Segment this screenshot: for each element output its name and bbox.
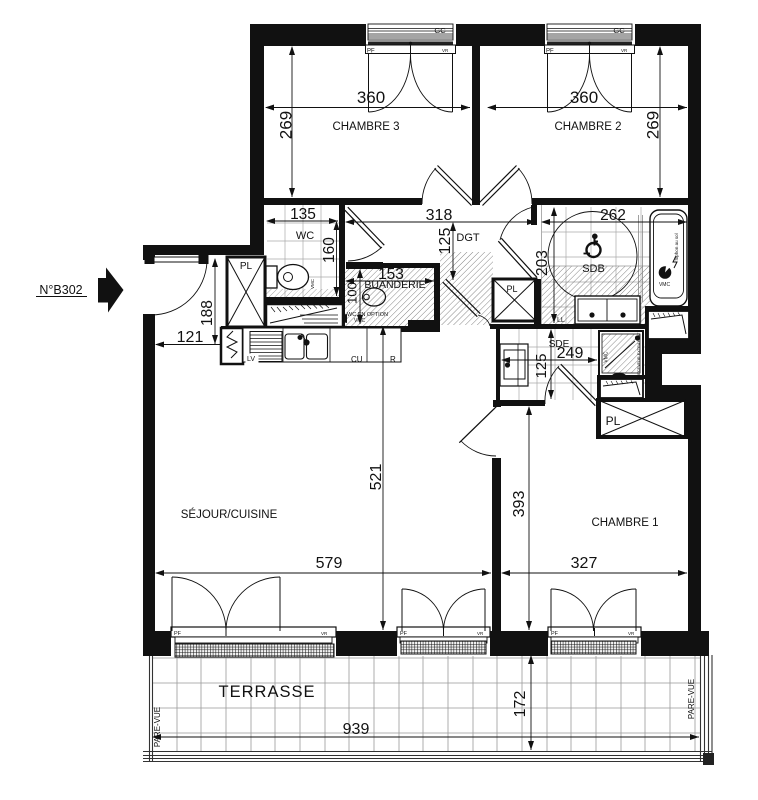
svg-text:125: 125 — [437, 228, 454, 255]
svg-text:CHAMBRE 1: CHAMBRE 1 — [591, 517, 658, 529]
svg-text:PL: PL — [606, 414, 621, 428]
svg-text:VR: VR — [321, 631, 328, 636]
svg-text:188: 188 — [199, 300, 216, 326]
svg-text:VR: VR — [628, 631, 635, 636]
svg-text:GC: GC — [613, 26, 625, 35]
svg-text:269: 269 — [643, 111, 662, 139]
svg-text:327: 327 — [571, 555, 598, 572]
svg-text:Siphon au sol: Siphon au sol — [674, 233, 679, 260]
svg-text:VMC: VMC — [603, 351, 609, 363]
svg-text:172: 172 — [512, 691, 529, 718]
svg-text:PL: PL — [506, 284, 517, 294]
svg-text:VR: VR — [621, 48, 628, 53]
svg-text:PARE-VUE: PARE-VUE — [153, 707, 162, 747]
svg-text:PF: PF — [551, 631, 559, 637]
svg-text:100: 100 — [344, 282, 359, 304]
svg-text:360: 360 — [357, 88, 385, 107]
svg-text:SÉJOUR/CUISINE: SÉJOUR/CUISINE — [181, 508, 278, 521]
svg-text:SDE: SDE — [549, 339, 570, 350]
svg-text:CU: CU — [351, 355, 363, 364]
svg-text:VMC: VMC — [659, 282, 671, 288]
svg-text:579: 579 — [316, 555, 343, 572]
svg-text:318: 318 — [426, 207, 453, 224]
svg-text:VMC: VMC — [310, 278, 315, 289]
svg-text:160: 160 — [321, 237, 338, 263]
svg-text:BUANDERIE: BUANDERIE — [364, 279, 425, 291]
svg-text:GC: GC — [434, 26, 446, 35]
svg-text:PF: PF — [400, 631, 408, 637]
svg-text:LV: LV — [247, 356, 255, 363]
svg-text:VR: VR — [442, 48, 449, 53]
svg-text:393: 393 — [511, 491, 528, 518]
svg-text:262: 262 — [600, 207, 626, 224]
svg-text:521: 521 — [368, 464, 385, 491]
svg-text:SDB: SDB — [582, 263, 605, 275]
svg-text:269: 269 — [276, 111, 295, 139]
svg-text:939: 939 — [343, 721, 370, 738]
svg-text:135: 135 — [290, 206, 316, 223]
svg-text:CHAMBRE 2: CHAMBRE 2 — [554, 121, 621, 133]
svg-text:DGT: DGT — [456, 232, 480, 244]
svg-text:RECEVEUR EXTRA PLAT: RECEVEUR EXTRA PLAT — [637, 332, 641, 378]
svg-text:R: R — [390, 355, 396, 364]
svg-text:WC: WC — [296, 230, 314, 242]
svg-text:203: 203 — [534, 250, 551, 276]
svg-text:PF: PF — [174, 631, 182, 637]
svg-text:LL: LL — [557, 317, 565, 324]
svg-text:PF: PF — [367, 49, 375, 55]
svg-text:125: 125 — [533, 353, 550, 378]
svg-text:PL: PL — [240, 261, 253, 272]
svg-text:TERRASSE: TERRASSE — [219, 683, 316, 701]
svg-text:PF: PF — [546, 49, 554, 55]
svg-text:N°B302: N°B302 — [39, 283, 82, 297]
svg-text:121: 121 — [177, 329, 204, 346]
svg-text:PARE-VUE: PARE-VUE — [687, 679, 696, 719]
svg-text:CHAMBRE 3: CHAMBRE 3 — [332, 121, 399, 133]
svg-text:VR: VR — [477, 631, 484, 636]
svg-text:360: 360 — [570, 88, 598, 107]
